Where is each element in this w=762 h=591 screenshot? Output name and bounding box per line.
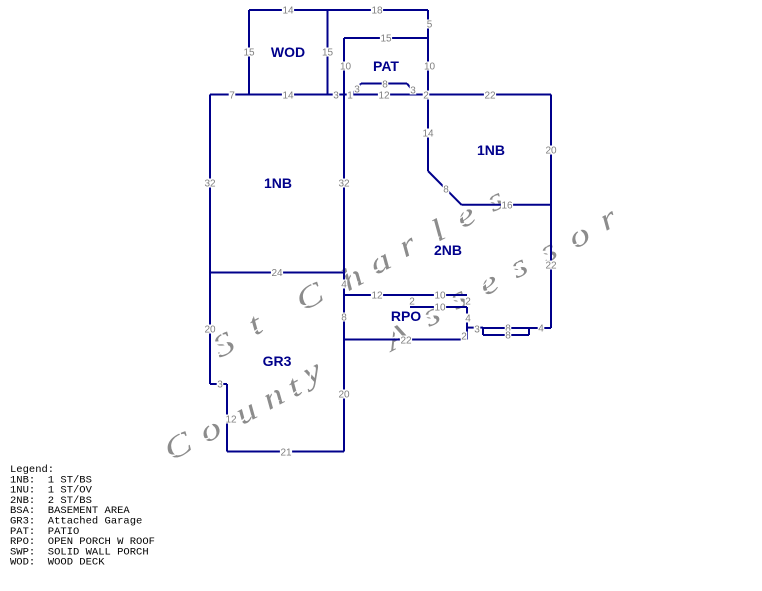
svg-text:14: 14 xyxy=(282,6,294,17)
svg-text:16: 16 xyxy=(501,201,513,212)
svg-text:2: 2 xyxy=(423,91,429,102)
svg-text:3: 3 xyxy=(333,91,339,102)
svg-text:10: 10 xyxy=(340,62,352,73)
svg-text:8: 8 xyxy=(382,80,388,91)
svg-text:8: 8 xyxy=(341,313,347,324)
svg-text:18: 18 xyxy=(371,6,383,17)
svg-text:20: 20 xyxy=(338,390,350,401)
svg-text:10: 10 xyxy=(434,303,446,314)
svg-text:32: 32 xyxy=(338,179,350,190)
svg-text:2: 2 xyxy=(409,297,415,308)
svg-text:12: 12 xyxy=(371,291,383,302)
svg-text:4: 4 xyxy=(538,324,544,335)
svg-text:3: 3 xyxy=(410,86,416,97)
svg-text:7: 7 xyxy=(229,91,235,102)
svg-text:24: 24 xyxy=(271,268,283,279)
svg-text:3: 3 xyxy=(217,380,223,391)
svg-text:3: 3 xyxy=(354,85,360,96)
svg-text:22: 22 xyxy=(400,336,412,347)
svg-text:12: 12 xyxy=(225,415,237,426)
svg-text:20: 20 xyxy=(545,146,557,157)
svg-text:32: 32 xyxy=(204,179,216,190)
svg-text:1: 1 xyxy=(347,91,353,102)
svg-text:PAT: PAT xyxy=(373,58,399,74)
svg-text:2NB: 2NB xyxy=(434,242,462,258)
svg-text:14: 14 xyxy=(422,129,434,140)
svg-text:8: 8 xyxy=(505,331,511,342)
svg-text:10: 10 xyxy=(434,291,446,302)
svg-text:4: 4 xyxy=(341,280,347,291)
svg-text:22: 22 xyxy=(545,261,557,272)
svg-text:10: 10 xyxy=(424,62,436,73)
svg-text:20: 20 xyxy=(204,325,216,336)
svg-text:4: 4 xyxy=(465,314,471,325)
svg-text:2: 2 xyxy=(465,297,471,308)
svg-text:WOD: WOD xyxy=(271,44,305,60)
svg-text:3: 3 xyxy=(474,325,480,336)
svg-text:2: 2 xyxy=(461,332,467,343)
svg-text:1NB: 1NB xyxy=(477,142,505,158)
svg-text:WOD: WOOD DECK: WOD: WOOD DECK xyxy=(10,557,105,569)
svg-text:15: 15 xyxy=(243,48,255,59)
svg-text:1NB: 1NB xyxy=(264,175,292,191)
svg-text:14: 14 xyxy=(282,91,294,102)
svg-text:21: 21 xyxy=(280,448,292,459)
svg-text:12: 12 xyxy=(378,91,390,102)
svg-text:8: 8 xyxy=(443,185,449,196)
svg-text:5: 5 xyxy=(427,20,433,31)
svg-text:15: 15 xyxy=(380,34,392,45)
svg-text:RPO: RPO xyxy=(391,308,421,324)
svg-text:GR3: GR3 xyxy=(263,353,292,369)
svg-text:15: 15 xyxy=(322,48,334,59)
svg-text:22: 22 xyxy=(484,91,496,102)
